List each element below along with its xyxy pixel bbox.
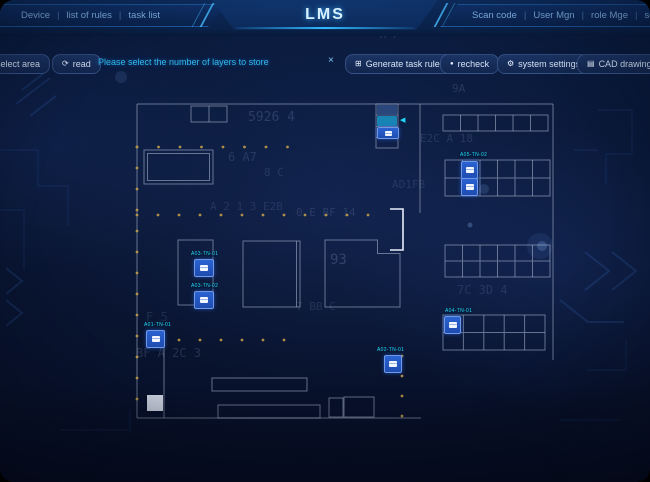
rack-cell-selected[interactable] xyxy=(377,116,397,126)
device-marker[interactable] xyxy=(384,355,402,373)
device-marker[interactable] xyxy=(194,291,214,309)
rack-cell-device[interactable] xyxy=(377,127,399,139)
door-bracket xyxy=(390,209,403,250)
white-station-box xyxy=(147,395,163,411)
device-label: A03-TN-02 xyxy=(190,283,219,289)
storage-cell-marker[interactable] xyxy=(444,316,461,334)
rack-cell-header xyxy=(377,105,397,115)
shuttle-icon xyxy=(389,361,397,367)
device-marker[interactable] xyxy=(194,259,214,277)
rack-label: A04-TN-01 xyxy=(444,308,473,314)
device-marker[interactable] xyxy=(146,330,165,348)
shuttle-icon xyxy=(200,297,208,303)
shuttle-icon xyxy=(466,167,474,173)
shuttle-icon xyxy=(385,131,392,136)
shuttle-icon xyxy=(200,265,208,271)
device-label: A01-TN-01 xyxy=(143,322,172,328)
shuttle-icon xyxy=(466,184,474,190)
shuttle-icon xyxy=(152,336,160,342)
storage-cell-marker[interactable] xyxy=(461,178,478,196)
rack-label: A05-TN-02 xyxy=(459,152,488,158)
arrow-left-icon: ◀ xyxy=(400,117,405,124)
shuttle-icon xyxy=(449,322,457,328)
storage-cell-marker[interactable] xyxy=(461,161,478,179)
device-label: A02-TN-01 xyxy=(376,347,405,353)
device-label: A03-TN-01 xyxy=(190,251,219,257)
cad-floor-plan[interactable] xyxy=(0,0,650,482)
lms-app: 5926 4 6 A7 8 C 0 E BF 14 93 7 BB C BF A… xyxy=(0,0,650,482)
